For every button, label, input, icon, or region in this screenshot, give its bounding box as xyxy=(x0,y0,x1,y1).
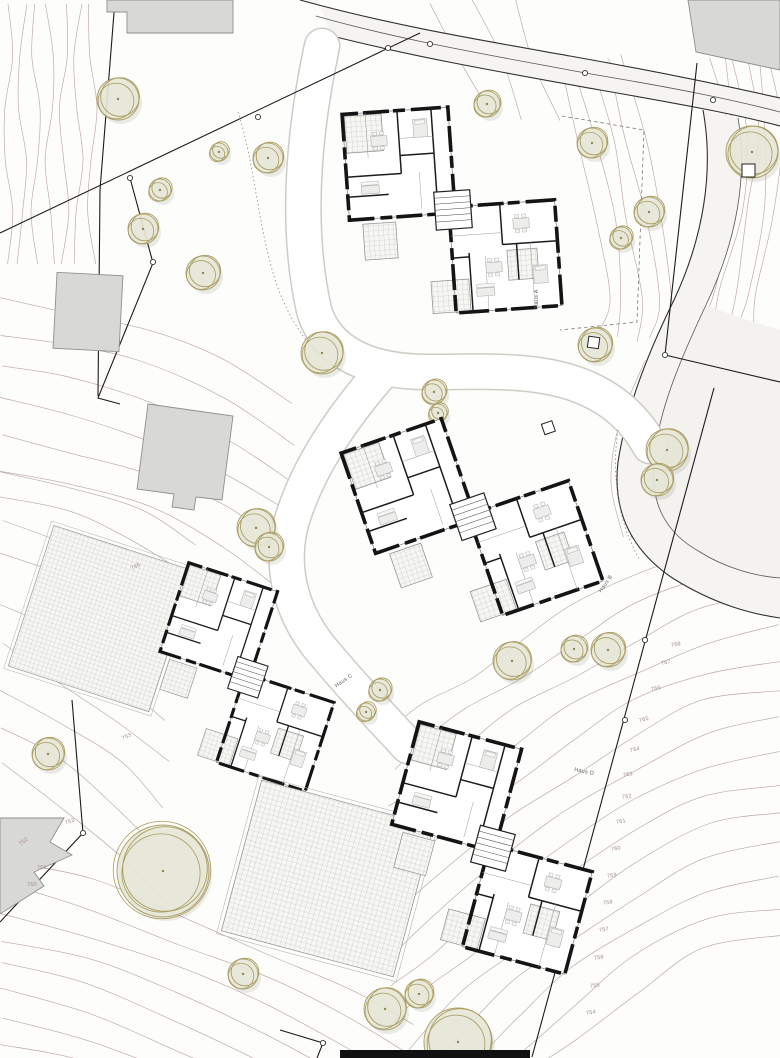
site-equipment-square xyxy=(587,336,599,348)
site-plan: Haus AHaus BHaus CHaus D7687677667657647… xyxy=(0,0,780,1058)
building-haus-a xyxy=(342,100,562,320)
existing-building xyxy=(53,272,123,351)
site-plan-map xyxy=(0,0,780,1058)
site-equipment-square xyxy=(541,421,555,435)
building-haus-b xyxy=(341,386,603,648)
retaining-wall xyxy=(340,1050,530,1058)
existing-building xyxy=(107,0,233,33)
existing-building xyxy=(688,0,780,70)
existing-building xyxy=(137,404,233,510)
existing-building xyxy=(0,818,72,914)
site-equipment-square xyxy=(742,164,755,177)
